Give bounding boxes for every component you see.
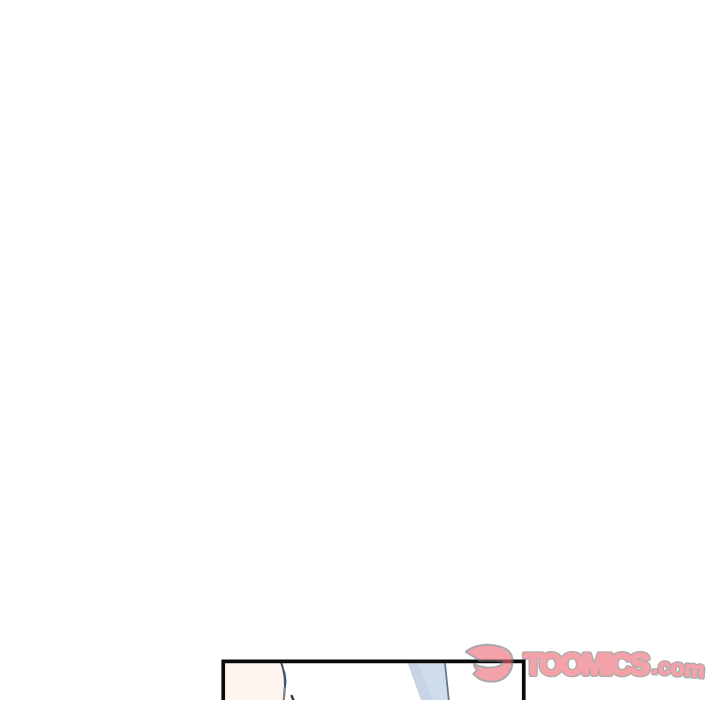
- svg-text:TOOMICS: TOOMICS: [524, 649, 650, 682]
- svg-text:.com: .com: [651, 652, 706, 683]
